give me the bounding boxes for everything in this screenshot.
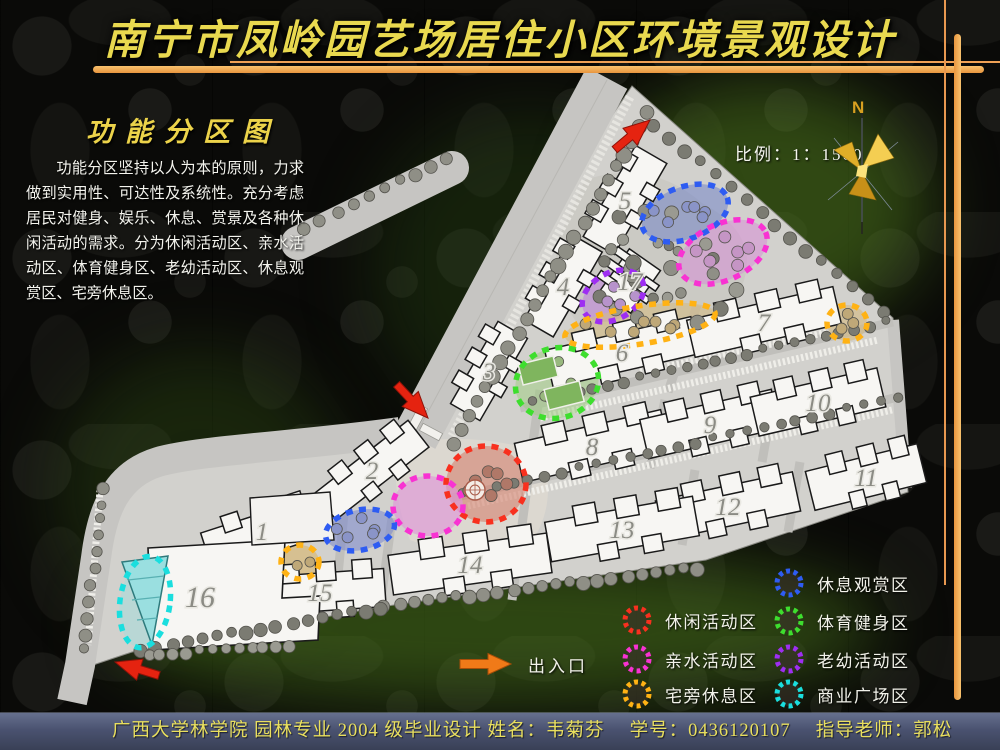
tree: [615, 299, 626, 310]
tree: [523, 582, 535, 594]
tree: [832, 268, 842, 278]
tree: [501, 478, 513, 490]
tree: [380, 183, 390, 193]
tree: [669, 320, 680, 331]
tree: [682, 201, 693, 212]
tree: [683, 362, 693, 372]
tree: [625, 255, 641, 271]
tree: [586, 202, 599, 215]
tree: [84, 580, 95, 591]
tree: [528, 397, 537, 406]
tree: [640, 106, 654, 120]
tree: [537, 581, 548, 592]
tree: [676, 288, 687, 299]
tree: [83, 596, 95, 608]
tree: [741, 194, 753, 206]
zone-swatch-icon: [620, 642, 654, 676]
tree: [144, 650, 155, 661]
zone-dashed-outline: [827, 305, 867, 341]
tree: [522, 475, 532, 485]
tree: [521, 313, 534, 326]
tree: [636, 372, 644, 380]
legend-item: 宅旁休息区: [620, 677, 758, 711]
tree: [575, 387, 585, 397]
tree: [695, 156, 705, 166]
tree: [455, 423, 468, 436]
tree: [632, 120, 646, 134]
tree: [638, 204, 652, 218]
zone-swatch-icon: [620, 677, 654, 711]
zone-area: [322, 503, 399, 557]
tree: [212, 630, 222, 640]
tree: [662, 292, 673, 303]
tree: [662, 132, 675, 145]
building-number: 16: [185, 581, 215, 614]
right-border-thin: [944, 0, 946, 585]
tree: [824, 409, 835, 420]
tree: [690, 438, 701, 449]
tree: [663, 217, 674, 228]
zone-area: [562, 294, 718, 355]
entrance-arrow-icon: [458, 651, 512, 677]
building-number: 1: [256, 519, 269, 546]
building-number: 11: [854, 465, 877, 492]
tree: [777, 419, 787, 429]
road-details: [407, 80, 630, 441]
green-glow: [370, 110, 690, 430]
legend-item: 老幼活动区: [772, 642, 910, 676]
tree: [602, 296, 613, 307]
tree: [479, 381, 490, 392]
tree: [860, 400, 868, 408]
tree: [847, 281, 858, 292]
tree: [894, 393, 903, 402]
tree: [90, 563, 101, 574]
tree: [395, 598, 407, 610]
tree: [711, 168, 721, 178]
tree: [347, 606, 357, 616]
tree: [664, 241, 674, 251]
tree: [651, 369, 660, 378]
tree: [254, 623, 267, 636]
building-16-block: [122, 492, 334, 650]
zone-area: [634, 173, 736, 253]
plaza-circle-motif: [465, 480, 485, 500]
plaza-ground: [396, 439, 548, 552]
zone-area: [446, 446, 526, 522]
building-number: 14: [458, 552, 483, 579]
tree: [624, 261, 640, 277]
tree: [556, 468, 567, 479]
tree: [369, 525, 380, 536]
tree: [743, 426, 752, 435]
tree: [849, 325, 860, 336]
tree: [690, 245, 702, 257]
entrance-label: 出入口: [528, 652, 588, 677]
tree: [665, 206, 679, 220]
tree: [197, 633, 208, 644]
tree: [332, 609, 343, 620]
tree: [463, 485, 475, 497]
tree: [618, 377, 629, 388]
tree: [559, 390, 569, 400]
tree: [877, 396, 886, 405]
tree: [485, 369, 501, 385]
building: [309, 413, 433, 525]
tree: [565, 577, 575, 587]
tree: [625, 267, 641, 283]
legend-item: 亲水活动区: [620, 642, 758, 676]
tree: [540, 391, 550, 401]
tree: [270, 641, 282, 653]
tree: [509, 478, 519, 488]
building-number: 7: [758, 310, 772, 337]
tree: [94, 530, 104, 540]
footer-credits: 广西大学林学院 园林专业 2004 级毕业设计 姓名：韦菊芬 学号：043612…: [112, 713, 952, 750]
tree: [513, 327, 527, 341]
tree: [359, 605, 373, 619]
tree: [741, 349, 752, 360]
tree: [356, 513, 367, 524]
tree: [92, 546, 102, 556]
tree: [81, 613, 93, 625]
tree: [482, 466, 494, 478]
building-number: 4: [557, 274, 570, 301]
zone-dashed-outline: [669, 207, 778, 297]
section-paragraph: 功能分区坚持以人为本的原则，力求做到实用性、可达性及系统性。充分考虑居民对健身、…: [26, 156, 304, 306]
building: [542, 306, 701, 395]
tree: [550, 258, 566, 274]
tree: [134, 644, 147, 657]
legend-item: 休闲活动区: [620, 603, 758, 637]
north-arrow: N: [822, 98, 906, 238]
tree: [566, 378, 576, 388]
tree: [743, 242, 755, 254]
tree: [768, 219, 781, 232]
tree: [605, 244, 616, 255]
tree: [665, 323, 676, 334]
tree: [539, 471, 550, 482]
building: [198, 488, 326, 572]
tree: [167, 648, 179, 660]
tree: [848, 318, 859, 329]
zone-swatch-icon: [620, 603, 654, 637]
tree: [648, 293, 659, 304]
tree: [713, 301, 728, 316]
zone-dashed-outline: [446, 446, 526, 522]
tree: [616, 148, 632, 164]
zone-dashed-outline: [507, 338, 606, 427]
tree: [707, 268, 719, 280]
commercial-plaza-building: [122, 556, 168, 645]
zone-area: [573, 260, 653, 333]
zone-swatch-icon: [772, 604, 806, 638]
tree: [626, 452, 635, 461]
tree: [440, 153, 452, 165]
tree: [667, 366, 676, 375]
tree: [463, 409, 475, 421]
tree: [227, 627, 237, 637]
tree: [590, 574, 604, 588]
tree: [395, 175, 404, 184]
tree: [704, 255, 716, 267]
tree: [462, 590, 476, 604]
tree: [624, 134, 639, 149]
tree: [374, 602, 387, 615]
tree: [208, 644, 217, 653]
building: [253, 558, 387, 623]
tree: [149, 641, 162, 654]
tree: [790, 338, 799, 347]
tree: [678, 145, 692, 159]
building: [748, 357, 888, 444]
tree: [182, 636, 194, 648]
tree: [608, 281, 619, 292]
tree: [878, 306, 890, 318]
zone-area: [669, 207, 778, 297]
building-number: 9: [704, 412, 717, 439]
tree: [612, 210, 626, 224]
tree: [558, 244, 573, 259]
tree: [195, 645, 204, 654]
park-ground: [556, 173, 747, 348]
tree: [221, 644, 231, 654]
zone-label: 休闲活动区: [665, 608, 758, 633]
tree: [409, 596, 421, 608]
building-number: 3: [482, 359, 496, 386]
tree: [630, 291, 641, 302]
zone-dashed-outline: [562, 294, 718, 355]
tree: [587, 384, 598, 395]
tree: [760, 423, 769, 432]
building: [637, 378, 782, 466]
tree: [551, 579, 562, 590]
zone-label: 休息观赏区: [817, 571, 910, 596]
tree: [602, 174, 614, 186]
tree: [477, 588, 490, 601]
tree: [79, 644, 88, 653]
building-number: 10: [806, 390, 832, 417]
tree: [842, 308, 853, 319]
tree: [790, 416, 800, 426]
tree: [700, 207, 711, 218]
tree: [821, 331, 831, 341]
tree: [700, 238, 712, 250]
tree: [673, 442, 684, 453]
zone-dashed-outline: [281, 545, 319, 579]
tree: [799, 245, 813, 259]
tree: [729, 282, 744, 297]
zone-area: [507, 338, 606, 427]
building-number: 13: [610, 517, 635, 544]
parking-rows: [88, 332, 892, 645]
tree: [257, 642, 268, 653]
tree: [650, 567, 661, 578]
tree: [836, 323, 847, 334]
tree: [566, 230, 580, 244]
tree: [493, 355, 508, 370]
tree: [678, 563, 688, 573]
zone-swatch-icon: [772, 642, 806, 676]
zone-area: [393, 476, 463, 536]
zone-dashed-outline: [393, 476, 463, 536]
building: [516, 230, 609, 340]
building: [574, 140, 673, 258]
tree: [602, 381, 613, 392]
tree: [576, 576, 590, 590]
tree: [97, 482, 109, 494]
section-heading: 功能分区图: [86, 110, 281, 149]
tree: [732, 246, 744, 258]
building: [512, 399, 671, 490]
tree: [79, 629, 92, 642]
zone-area: [281, 545, 319, 579]
tree: [807, 412, 818, 423]
building: [803, 433, 929, 518]
tree: [726, 429, 735, 438]
tree: [471, 395, 483, 407]
tree: [333, 207, 345, 219]
tree: [458, 488, 467, 497]
tree: [833, 328, 843, 338]
building: [591, 243, 667, 318]
tree: [364, 191, 375, 202]
tree: [313, 215, 325, 227]
zone-label: 老幼活动区: [817, 647, 910, 672]
tree: [707, 252, 719, 264]
tree: [664, 565, 675, 576]
tree: [650, 316, 661, 327]
building-number: 8: [586, 434, 599, 461]
tree: [609, 303, 622, 316]
tree: [653, 238, 663, 248]
tree: [664, 260, 679, 275]
tree: [554, 357, 564, 367]
tree: [690, 563, 704, 577]
tree: [239, 626, 253, 640]
tree: [95, 513, 104, 522]
building: [543, 485, 701, 569]
tree: [292, 560, 302, 570]
tree: [154, 649, 165, 660]
tree: [882, 316, 890, 324]
tree: [594, 188, 607, 201]
tree: [580, 319, 591, 330]
tree: [509, 584, 521, 596]
tree: [578, 216, 592, 230]
tree: [617, 234, 628, 245]
building-number: 2: [366, 458, 379, 485]
page-title: 南宁市凤岭园艺场居住小区环境景观设计: [0, 6, 1000, 66]
tree: [475, 485, 484, 494]
tree: [593, 290, 606, 303]
tree: [348, 199, 359, 210]
tree: [469, 475, 481, 487]
tree: [726, 353, 737, 364]
tree: [656, 445, 666, 455]
tree: [690, 315, 705, 330]
tree: [783, 232, 796, 245]
tree: [367, 528, 378, 539]
tree: [501, 341, 515, 355]
tree: [604, 573, 617, 586]
green-glow: [110, 552, 880, 702]
tree: [732, 259, 744, 271]
zone-dashed-outline: [322, 503, 399, 557]
tree: [485, 490, 497, 502]
tree: [806, 334, 816, 344]
tree: [774, 341, 783, 350]
tree: [331, 524, 342, 535]
tree: [592, 459, 601, 468]
north-n-label: N: [852, 98, 864, 118]
tree: [269, 620, 282, 633]
tree: [630, 311, 643, 324]
tree: [423, 594, 434, 605]
tree: [544, 393, 553, 402]
zone-area: [827, 305, 867, 341]
tree: [377, 600, 390, 613]
tree: [710, 356, 720, 366]
tree: [628, 326, 639, 337]
tree: [843, 403, 851, 411]
tree: [409, 169, 422, 182]
tree: [673, 246, 683, 256]
exit-arrow-bottom-icon: [112, 651, 162, 685]
exit-arrow-top-icon: [608, 112, 657, 158]
tree: [447, 437, 461, 451]
tree: [545, 271, 556, 282]
green-glow: [55, 350, 345, 630]
title-underline-thick: [93, 66, 984, 73]
tree: [757, 206, 769, 218]
legend-item: 休息观赏区: [772, 566, 910, 600]
tree: [317, 612, 328, 623]
tree: [629, 272, 645, 288]
tree: [180, 648, 192, 660]
tree: [425, 161, 438, 174]
tree: [759, 344, 767, 352]
tree: [529, 299, 541, 311]
tree: [491, 586, 504, 599]
tree: [609, 456, 618, 465]
zone-dashed-outline: [573, 260, 653, 333]
tree: [697, 212, 708, 223]
tree: [287, 618, 299, 630]
entrance-arrow-main-icon: [389, 377, 436, 426]
tree: [342, 532, 353, 543]
tree: [248, 643, 259, 654]
tree: [234, 643, 244, 653]
legend-item: 体育健身区: [772, 604, 910, 638]
building: [684, 276, 843, 365]
building: [653, 461, 802, 548]
interior-roads: [336, 305, 903, 608]
tree: [302, 615, 314, 627]
tree: [698, 359, 708, 369]
tree: [648, 205, 659, 216]
tree: [647, 119, 660, 132]
zone-area: [114, 553, 176, 651]
zone-swatch-icon: [772, 677, 806, 711]
zone-label: 宅旁休息区: [665, 682, 758, 707]
north-compass-icon: [822, 98, 906, 238]
zone-dashed-outline: [634, 173, 736, 253]
tree: [726, 181, 737, 192]
tree: [451, 590, 461, 600]
tree: [283, 641, 295, 653]
tree: [636, 569, 648, 581]
